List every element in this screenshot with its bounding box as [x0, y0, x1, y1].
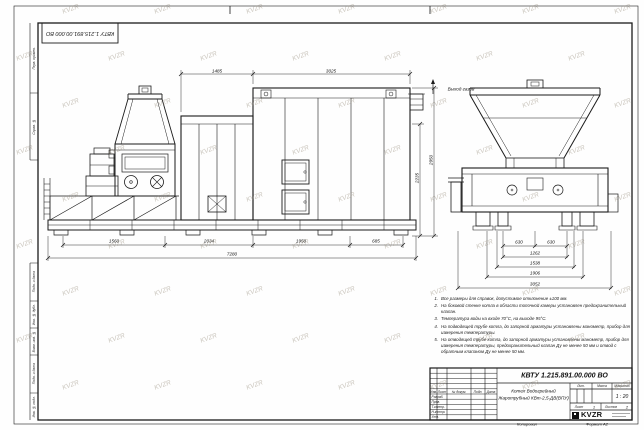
dim-top-1485: 1485 — [212, 69, 222, 74]
doc-number: КВТУ 1.215.891.00.000 ВО — [521, 372, 608, 379]
dim-bottom-685: 685 — [372, 239, 380, 244]
dim-bottom-1950: 1950 — [296, 239, 306, 244]
stamp-doc-number: КВТУ 1.215.891.00.000 ВО — [46, 30, 114, 36]
mass-label: Масса — [597, 384, 607, 388]
sheets-label: Листов — [605, 405, 617, 409]
row-tkontr: Т.контр. — [432, 405, 445, 409]
dim-height-2235: 2235 — [415, 173, 420, 183]
dim-front-1538: 1538 — [530, 261, 540, 266]
note-item: 2.На боковой стенке котла в области топо… — [430, 303, 630, 315]
scale-value: 1 : 20 — [616, 394, 629, 400]
col-data: Дата — [487, 390, 496, 394]
row-nkontr: Н.контр. — [432, 410, 446, 414]
dim-front-630a: 630 — [515, 240, 523, 245]
part-name-line2: Жаротрубный КВт-2,5-ДВ(ВПУ) — [498, 395, 569, 400]
gas-outlet-stub — [408, 79, 435, 110]
col-docnum: № докум. — [452, 390, 467, 394]
margin-label-perv-primen: Перв. примен. — [32, 47, 36, 70]
scale-label: Масштаб — [614, 384, 629, 388]
margin-label-podp-data-upper: Подп. и дата — [32, 271, 36, 292]
side-view — [44, 70, 438, 261]
margin-label-inv-podl: Инв. № подл. — [32, 396, 36, 417]
lit-label: Лит. — [577, 384, 585, 388]
dim-bottom-2034: 2034 — [204, 239, 214, 244]
side-view-dimensions — [46, 70, 438, 261]
dim-bottom-1560: 1560 — [109, 239, 119, 244]
dim-front-630b: 630 — [547, 240, 555, 245]
sheet-value: 1 — [593, 404, 595, 409]
margin-label-podp-data-lower: Подп. и дата — [32, 363, 36, 384]
note-item: 4.На подводящей трубе котла, до запорной… — [430, 324, 630, 336]
dim-front-1906: 1906 — [530, 271, 540, 276]
note-item: 1.Все размеры для справок, допустимое от… — [430, 296, 630, 302]
kvzr-logo-icon — [572, 412, 579, 419]
dim-height-2950: 2950 — [429, 155, 434, 165]
row-prov: Пров. — [432, 400, 441, 404]
dim-front-3052: 3052 — [530, 282, 540, 287]
margin-label-inv-dubl: Инв. № дубл. — [32, 304, 36, 325]
front-view — [448, 80, 618, 290]
dim-bottom-total-7280: 7280 — [227, 252, 237, 257]
sheet-label: Лист — [575, 405, 584, 409]
margin-label-vzam-inv: Взам. инв. № — [32, 331, 36, 352]
col-izm: Изм. — [430, 390, 437, 394]
logo-fine-print — [612, 416, 626, 417]
format-label: Формат А2 — [586, 422, 608, 427]
row-utv: Утв. — [432, 415, 440, 419]
kvzr-logo-text: KVZR — [581, 410, 602, 419]
drawing-linework — [0, 0, 644, 430]
col-podp: Подп. — [474, 390, 483, 394]
drawing-sheet: КВТУ 1.215.891.00.000 ВО Перв. примен. С… — [0, 0, 644, 430]
gas-outlet-label: Выход газов — [448, 87, 475, 92]
dim-top-3025: 3025 — [326, 69, 336, 74]
col-list: Лист — [438, 390, 447, 394]
sheets-value: 2 — [626, 404, 628, 409]
note-item: 5.На отводящей трубе котла, до запорной … — [430, 337, 630, 354]
logo-fine-print — [612, 413, 630, 414]
copied-label: Копировал — [517, 422, 537, 427]
part-name-line1: Котел Водогрейный — [511, 388, 555, 393]
note-item: 3.Температура воды на входе 70°С, на вых… — [430, 316, 630, 322]
row-razrab: Разраб. — [432, 395, 444, 399]
technical-notes: 1.Все размеры для справок, допустимое от… — [430, 296, 630, 356]
margin-label-sprav-no: Справ. № — [32, 119, 36, 135]
dim-front-1262: 1262 — [530, 251, 540, 256]
top-left-stamp: КВТУ 1.215.891.00.000 ВО — [42, 23, 118, 43]
